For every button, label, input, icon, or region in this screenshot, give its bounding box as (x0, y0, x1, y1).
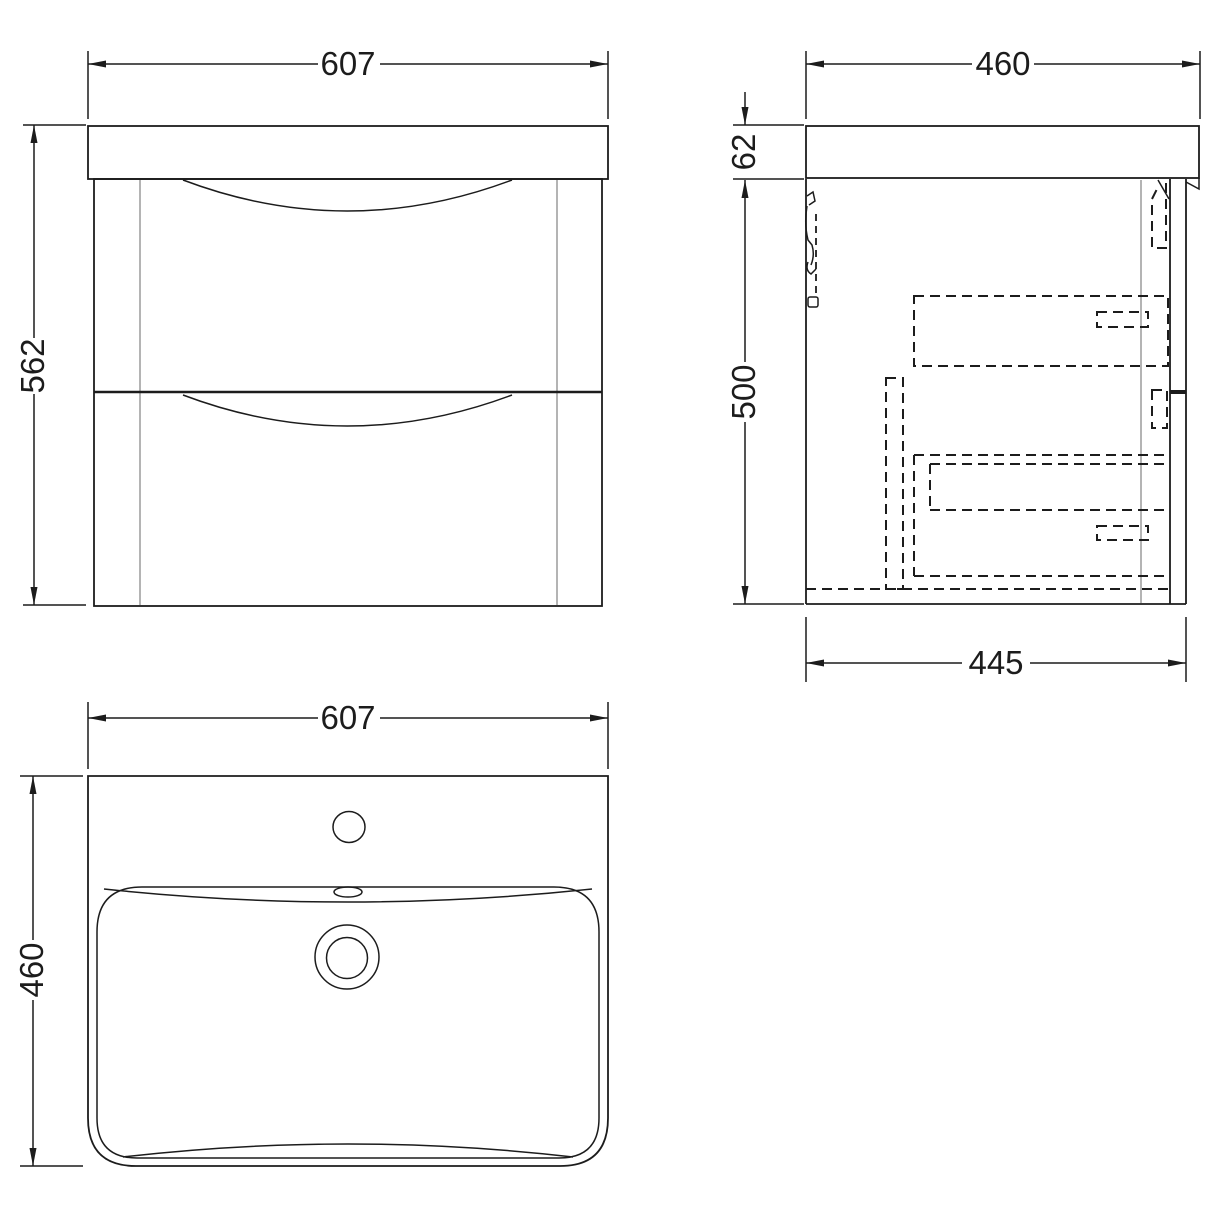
drawing-background (0, 0, 1224, 1224)
front-width-label: 607 (320, 45, 375, 82)
side-countertop-thickness-label: 62 (725, 134, 762, 171)
side-cabinet-height-label: 500 (725, 364, 762, 419)
side-depth-label: 460 (975, 45, 1030, 82)
front-height-label: 562 (14, 338, 51, 393)
top-depth-label: 460 (13, 942, 50, 997)
side-cabinet-depth-label: 445 (968, 644, 1023, 681)
vanity-drawing-svg: 607 562 460 (0, 0, 1224, 1224)
technical-drawing-canvas: 607 562 460 (0, 0, 1224, 1224)
top-width-label: 607 (320, 699, 375, 736)
